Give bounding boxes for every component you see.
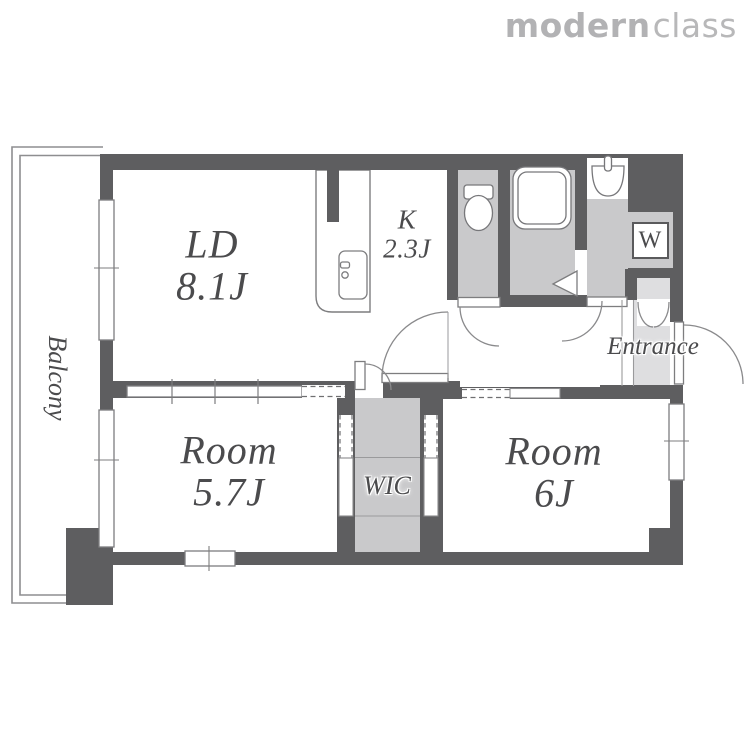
ld-size: 8.1J	[176, 266, 248, 308]
label-room-57: Room 5.7J	[180, 430, 277, 515]
washroom-door-leaf	[587, 297, 627, 307]
wic-door-leaf	[355, 362, 365, 390]
toilet-door-arc	[460, 307, 499, 346]
room57-bottom-window	[185, 551, 235, 566]
ld-name: LD	[176, 224, 248, 266]
room57-name: Room	[180, 430, 277, 472]
kitchen-name: K	[383, 205, 431, 234]
ld-door-arc	[382, 312, 448, 378]
room57-size: 5.7J	[180, 472, 277, 514]
toilet-icon	[464, 185, 493, 231]
toilet-door-leaf	[458, 298, 500, 308]
label-room-6: Room 6J	[505, 431, 602, 516]
washbasin-icon	[587, 156, 628, 199]
shoe-closet-floor	[637, 277, 670, 299]
label-wic: WIC	[363, 472, 411, 500]
washroom-floor	[587, 197, 628, 297]
floorplan-page: modernclass	[0, 0, 750, 750]
ld-window	[99, 200, 114, 340]
entrance-floors	[634, 277, 670, 386]
room6-sliding-door	[510, 389, 560, 399]
room6-size: 6J	[505, 473, 602, 515]
floorplan-drawing	[0, 0, 750, 750]
shoe-closet-door-area	[637, 299, 670, 326]
label-balcony: Balcony	[43, 335, 71, 420]
ld-door-leaf	[382, 374, 448, 383]
label-entrance: Entrance	[607, 334, 699, 361]
room6-window	[669, 404, 684, 480]
label-living-dining: LD 8.1J	[176, 224, 248, 309]
label-kitchen: K 2.3J	[383, 205, 431, 262]
room6-name: Room	[505, 431, 602, 473]
bathtub-icon	[513, 167, 571, 229]
kitchen-size: 2.3J	[383, 234, 431, 263]
room57-window	[99, 410, 114, 547]
label-washer: W	[639, 228, 662, 253]
kitchen-sink	[339, 251, 367, 299]
